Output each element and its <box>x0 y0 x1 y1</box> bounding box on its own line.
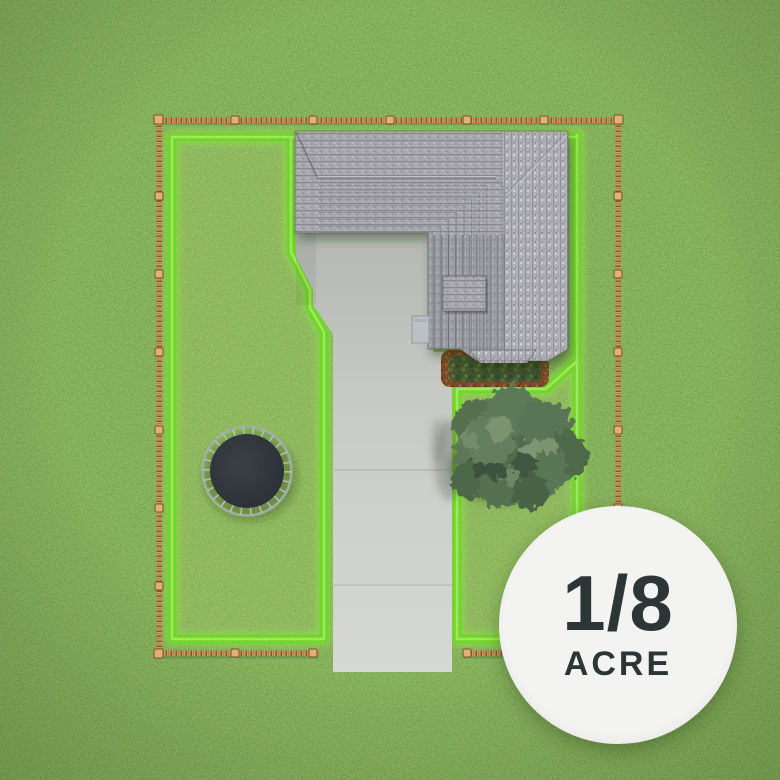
badge-unit-text: ACRE <box>564 645 672 684</box>
badge-fraction-text: 1/8 <box>562 566 673 640</box>
trampoline-mat <box>210 434 284 508</box>
utility-box <box>412 316 429 343</box>
aerial-lot-view: 1/8 ACRE <box>0 0 780 780</box>
roof-bump-out <box>443 276 488 314</box>
acre-size-badge: 1/8 ACRE <box>499 506 737 744</box>
